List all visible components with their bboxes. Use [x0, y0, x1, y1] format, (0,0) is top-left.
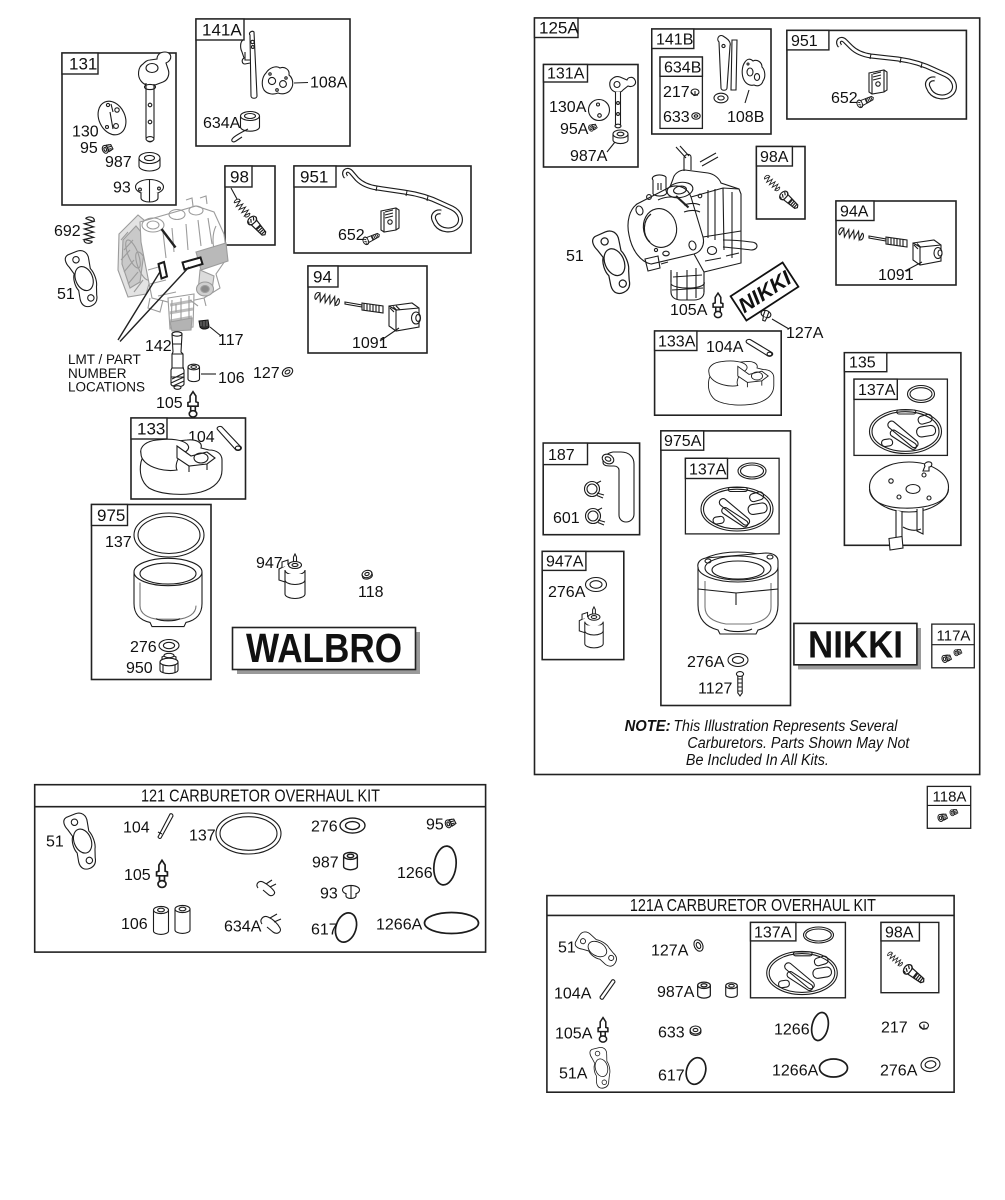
svg-text:94: 94 — [313, 268, 332, 287]
svg-text:105A: 105A — [555, 1026, 593, 1043]
svg-text:108A: 108A — [310, 75, 348, 92]
svg-text:125A: 125A — [539, 19, 579, 38]
svg-text:137: 137 — [105, 534, 132, 551]
svg-text:1091: 1091 — [878, 267, 914, 284]
svg-text:127: 127 — [253, 365, 280, 382]
svg-text:987: 987 — [105, 154, 132, 171]
svg-text:617: 617 — [311, 922, 338, 939]
svg-text:104: 104 — [123, 820, 150, 837]
svg-text:951: 951 — [791, 33, 818, 50]
svg-text:947: 947 — [256, 555, 283, 572]
svg-text:652: 652 — [831, 90, 858, 107]
svg-text:104A: 104A — [554, 986, 592, 1003]
svg-text:127A: 127A — [786, 325, 824, 342]
svg-text:975: 975 — [97, 506, 125, 525]
svg-text:950: 950 — [126, 660, 153, 677]
svg-text:692: 692 — [54, 223, 81, 240]
svg-text:95: 95 — [80, 140, 98, 157]
svg-text:276A: 276A — [687, 654, 725, 671]
svg-text:137A: 137A — [754, 924, 792, 941]
svg-text:634A: 634A — [203, 115, 241, 132]
svg-text:947A: 947A — [546, 553, 584, 570]
svg-text:94A: 94A — [840, 204, 869, 221]
svg-text:137A: 137A — [689, 461, 727, 478]
svg-text:951: 951 — [300, 168, 328, 187]
svg-text:133A: 133A — [658, 334, 696, 351]
svg-text:217: 217 — [663, 84, 690, 101]
svg-text:105: 105 — [156, 395, 183, 412]
svg-text:137A: 137A — [858, 382, 896, 399]
svg-text:51: 51 — [57, 286, 75, 303]
svg-text:106: 106 — [218, 370, 245, 387]
svg-text:118: 118 — [358, 584, 384, 601]
svg-text:51: 51 — [46, 834, 64, 851]
svg-text:105: 105 — [124, 867, 151, 884]
svg-text:127A: 127A — [651, 943, 689, 960]
svg-text:Be Included In All Kits.: Be Included In All Kits. — [686, 752, 829, 769]
svg-text:142: 142 — [145, 338, 172, 355]
svg-text:104A: 104A — [706, 339, 744, 356]
svg-text:601: 601 — [553, 510, 580, 527]
svg-text:633: 633 — [658, 1025, 685, 1042]
svg-text:652: 652 — [338, 227, 365, 244]
svg-text:98A: 98A — [885, 924, 914, 941]
svg-text:117A: 117A — [937, 628, 971, 645]
svg-text:117: 117 — [218, 332, 244, 349]
svg-text:135: 135 — [849, 355, 876, 372]
svg-text:276: 276 — [130, 639, 157, 656]
svg-text:121A CARBURETOR OVERHAUL KIT: 121A CARBURETOR OVERHAUL KIT — [630, 895, 876, 915]
svg-text:51: 51 — [566, 248, 584, 265]
svg-text:276A: 276A — [548, 584, 586, 601]
svg-text:105A: 105A — [670, 302, 708, 319]
svg-text:987A: 987A — [657, 984, 695, 1001]
svg-text:137: 137 — [189, 828, 216, 845]
svg-text:51A: 51A — [559, 1066, 588, 1083]
svg-text:617: 617 — [658, 1068, 685, 1085]
svg-text:187: 187 — [548, 447, 575, 464]
svg-text:NIKKI: NIKKI — [808, 625, 903, 667]
svg-text:1091: 1091 — [352, 335, 388, 352]
svg-text:95A: 95A — [560, 121, 589, 138]
svg-text:987A: 987A — [570, 148, 608, 165]
svg-text:Carburetors. Parts Shown May N: Carburetors. Parts Shown May Not — [687, 735, 910, 752]
svg-text:108B: 108B — [727, 109, 764, 126]
svg-text:1266: 1266 — [774, 1022, 810, 1039]
svg-text:634B: 634B — [664, 60, 701, 77]
svg-text:95: 95 — [426, 817, 444, 834]
svg-text:130A: 130A — [549, 99, 587, 116]
svg-text:634A: 634A — [224, 919, 262, 936]
svg-text:93: 93 — [320, 886, 338, 903]
svg-text:131A: 131A — [547, 66, 585, 83]
svg-text:1266A: 1266A — [772, 1063, 819, 1080]
svg-text:118A: 118A — [933, 788, 967, 805]
svg-text:98: 98 — [230, 168, 249, 187]
svg-text:633: 633 — [663, 109, 690, 126]
svg-text:51: 51 — [558, 940, 576, 957]
svg-text:LMT / PART: LMT / PART — [68, 352, 141, 367]
svg-text:NOTE:This Illustration Represe: NOTE:This Illustration Represents Severa… — [625, 718, 898, 735]
svg-text:276: 276 — [311, 819, 338, 836]
svg-text:130: 130 — [72, 124, 99, 141]
svg-text:WALBRO: WALBRO — [246, 625, 402, 671]
svg-text:98A: 98A — [760, 149, 789, 166]
svg-text:1266: 1266 — [397, 865, 433, 882]
svg-text:LOCATIONS: LOCATIONS — [68, 380, 145, 395]
svg-text:133: 133 — [137, 420, 165, 439]
svg-text:121 CARBURETOR OVERHAUL KIT: 121 CARBURETOR OVERHAUL KIT — [141, 786, 380, 806]
svg-text:141B: 141B — [656, 32, 693, 49]
svg-text:131: 131 — [69, 55, 97, 74]
svg-text:93: 93 — [113, 180, 131, 197]
svg-text:141A: 141A — [202, 21, 242, 40]
svg-text:217: 217 — [881, 1020, 908, 1037]
svg-text:106: 106 — [121, 916, 148, 933]
svg-text:1266A: 1266A — [376, 917, 423, 934]
svg-text:276A: 276A — [880, 1063, 918, 1080]
svg-text:987: 987 — [312, 855, 339, 872]
svg-text:975A: 975A — [664, 433, 702, 450]
svg-text:1127: 1127 — [698, 681, 733, 698]
